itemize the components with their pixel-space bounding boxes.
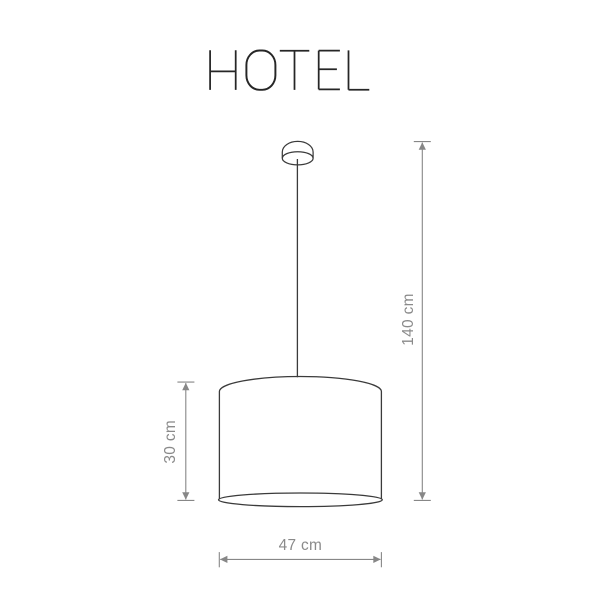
svg-text:30 cm: 30 cm [162, 420, 179, 464]
svg-text:140 cm: 140 cm [400, 293, 417, 346]
svg-text:47 cm: 47 cm [279, 537, 323, 554]
